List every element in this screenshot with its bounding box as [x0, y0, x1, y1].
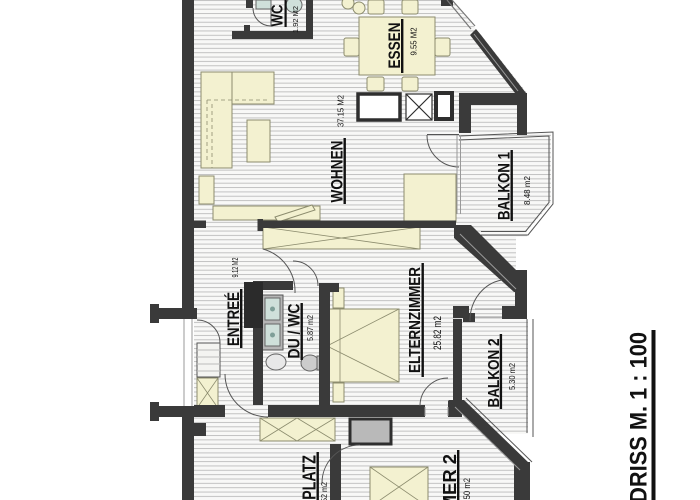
svg-text:9.55 M2: 9.55 M2 [410, 27, 419, 56]
svg-text:ELTERNZIMMER: ELTERNZIMMER [407, 267, 424, 373]
svg-text:5.30 m2: 5.30 m2 [508, 362, 517, 390]
svg-text:8.48 m2: 8.48 m2 [522, 176, 532, 205]
svg-text:6.52 m2: 6.52 m2 [320, 482, 329, 500]
svg-text:5.87 m2: 5.87 m2 [306, 315, 315, 341]
svg-text:15.50 m2: 15.50 m2 [462, 478, 472, 500]
svg-text:GRUNDRISS M. 1 : 100: GRUNDRISS M. 1 : 100 [626, 332, 653, 500]
svg-text:WC: WC [270, 4, 287, 26]
svg-text:9.12 M2: 9.12 M2 [231, 257, 240, 277]
svg-text:1.92 M2: 1.92 M2 [291, 6, 300, 33]
svg-text:37.15 M2: 37.15 M2 [336, 95, 346, 127]
svg-text:25.82 m2: 25.82 m2 [432, 316, 444, 350]
